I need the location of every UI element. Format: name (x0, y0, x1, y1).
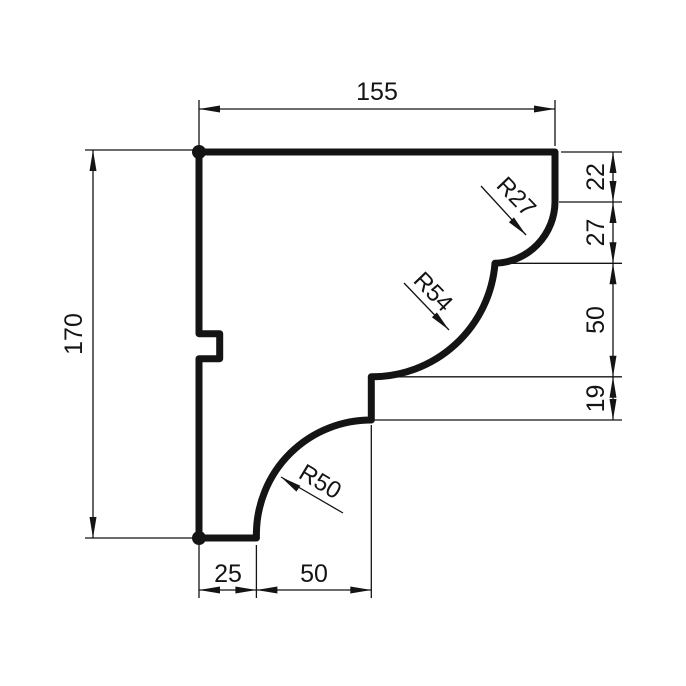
profile-outline (199, 152, 555, 538)
dim-bottom-stack: 25 50 (199, 425, 371, 598)
corner-origin-dot-bottom (192, 531, 206, 545)
dim-label-right-27: 27 (582, 219, 610, 247)
radius-label-r27: R27 (491, 172, 541, 222)
dim-left-height: 170 (60, 150, 194, 538)
radius-label-r50: R50 (294, 459, 346, 505)
drawing-canvas: 155 170 22 27 50 19 25 50 R27 (0, 0, 686, 686)
dim-label-bottom-50: 50 (300, 560, 328, 588)
profile-drawing-svg: 155 170 22 27 50 19 25 50 R27 (0, 0, 686, 686)
dim-top-width: 155 (199, 78, 555, 146)
radius-leader-r27: R27 (481, 172, 541, 235)
corner-origin-dot-top (192, 145, 206, 159)
radius-leader-r54: R54 (404, 267, 458, 330)
dim-label-bottom-25: 25 (214, 560, 242, 588)
radius-label-r54: R54 (408, 267, 458, 317)
dim-label-right-50: 50 (582, 306, 610, 334)
dim-label-right-19: 19 (582, 385, 610, 413)
dim-label-right-22: 22 (582, 163, 610, 191)
dim-label-top-width: 155 (356, 78, 398, 106)
radius-leader-r50: R50 (281, 459, 346, 513)
dim-label-left-height: 170 (60, 313, 88, 355)
